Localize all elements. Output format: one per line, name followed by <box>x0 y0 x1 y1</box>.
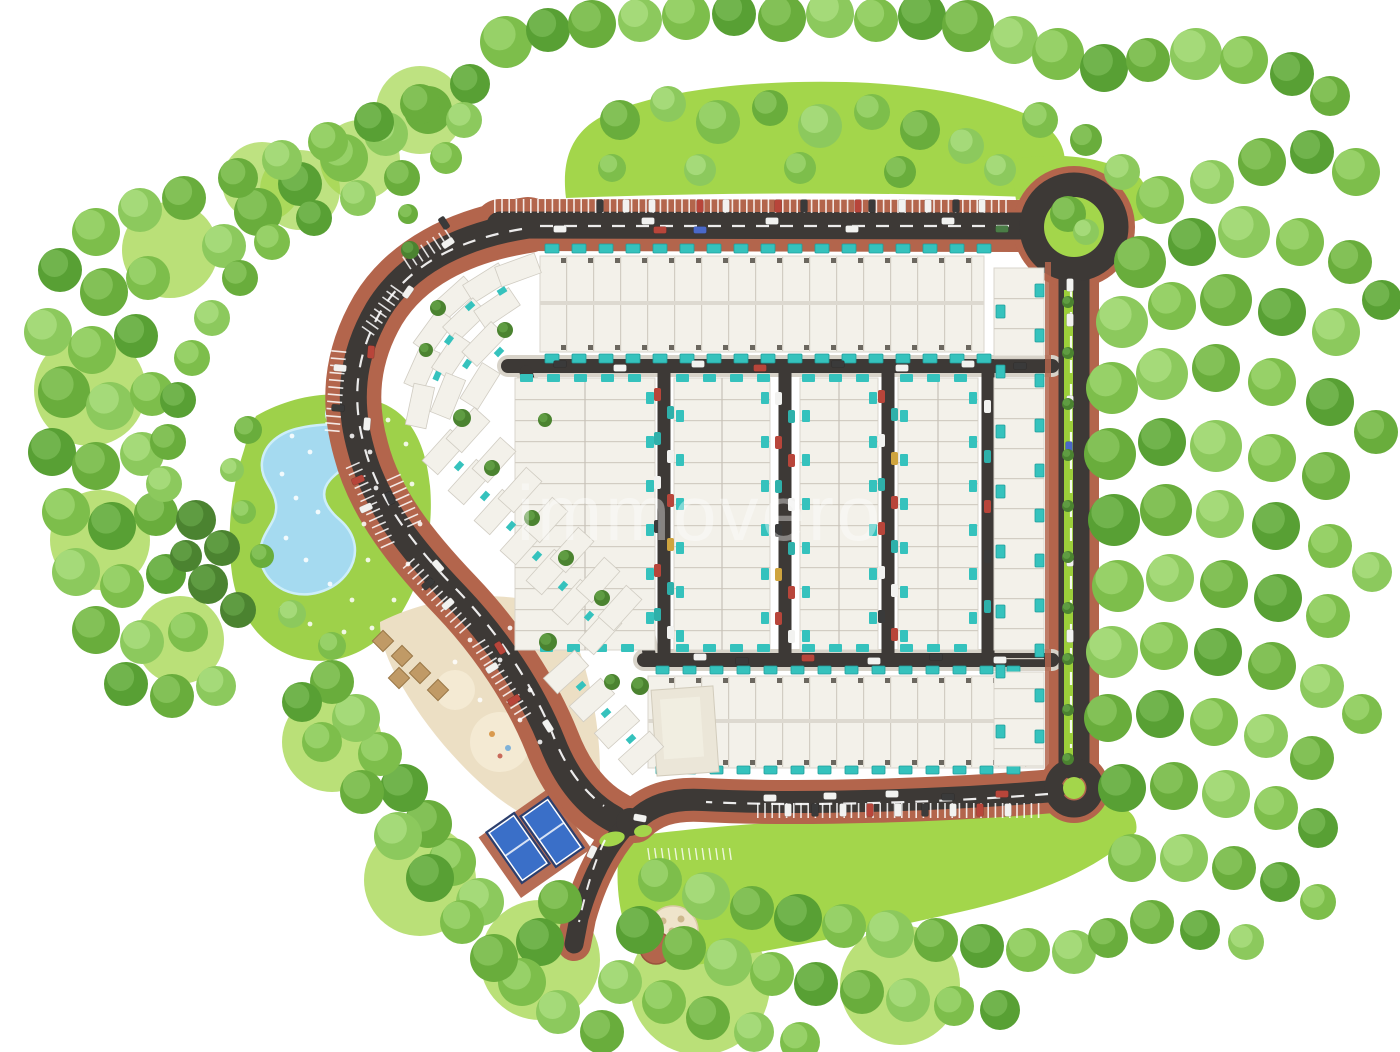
tree <box>400 84 440 124</box>
car <box>775 436 782 449</box>
car <box>996 226 1009 233</box>
tree-highlight <box>265 142 290 167</box>
pool <box>764 666 777 674</box>
pool <box>1035 329 1044 342</box>
car <box>996 791 1009 798</box>
pool <box>628 374 641 382</box>
pool <box>1035 284 1044 297</box>
tick <box>768 199 770 213</box>
tree-highlight <box>1303 666 1330 693</box>
tree-highlight <box>1151 284 1181 314</box>
car <box>649 200 656 213</box>
tree-highlight <box>320 633 337 650</box>
tree-highlight <box>1063 398 1070 405</box>
pool <box>734 354 748 363</box>
tick <box>764 803 766 818</box>
pebble <box>418 522 423 527</box>
tree <box>150 424 186 460</box>
tree <box>1126 38 1170 82</box>
tree <box>948 128 984 164</box>
tree-highlight <box>205 226 232 253</box>
wall <box>777 678 782 683</box>
tree <box>401 241 419 259</box>
tick <box>566 199 568 213</box>
pebble <box>308 450 313 455</box>
tree-highlight <box>1153 764 1183 794</box>
tree <box>1022 102 1058 138</box>
tree-highlight <box>652 87 674 109</box>
tick <box>523 199 525 213</box>
tree <box>28 428 76 476</box>
tree <box>1302 452 1350 500</box>
house-diagonal <box>594 705 639 749</box>
car <box>736 658 749 665</box>
tick <box>800 803 802 818</box>
tree <box>278 600 306 628</box>
car <box>922 804 929 817</box>
tree-highlight <box>539 414 548 423</box>
tree <box>1248 358 1296 406</box>
tree-highlight <box>1117 238 1149 270</box>
pebble <box>518 718 523 723</box>
tree-highlight <box>917 920 944 947</box>
tree <box>1062 398 1074 410</box>
pool <box>818 766 831 774</box>
tree <box>1190 160 1234 204</box>
pool <box>969 612 977 624</box>
tree <box>662 926 706 970</box>
tree-highlight <box>595 591 605 601</box>
pool <box>1035 419 1044 432</box>
car <box>614 365 627 372</box>
car <box>869 200 876 213</box>
tree <box>1202 770 1250 818</box>
pool <box>900 542 908 554</box>
tree-highlight <box>571 2 601 32</box>
tree-highlight <box>1099 298 1131 330</box>
tree <box>1138 418 1186 466</box>
tick <box>811 199 813 213</box>
tree <box>100 564 144 608</box>
pebble <box>374 486 379 491</box>
tree <box>440 900 484 944</box>
tick <box>710 199 712 213</box>
tree-highlight <box>1355 554 1380 579</box>
tree <box>752 90 788 126</box>
pebble <box>508 626 513 631</box>
pool <box>869 392 877 404</box>
block-spine <box>838 378 839 650</box>
pebble <box>468 638 473 643</box>
tree <box>594 590 610 606</box>
tree-highlight <box>311 124 336 149</box>
tree <box>604 674 620 690</box>
tick <box>991 199 993 213</box>
pool <box>761 354 775 363</box>
wall <box>831 760 836 765</box>
tree-highlight <box>343 772 370 799</box>
pebble <box>294 496 299 501</box>
tick <box>940 199 942 213</box>
east-sidewalk <box>1045 262 1051 768</box>
tree-highlight <box>357 104 382 129</box>
tick <box>858 803 860 818</box>
tree <box>398 204 418 224</box>
car <box>801 200 808 213</box>
tree-highlight <box>1193 422 1225 454</box>
pebble <box>308 622 313 627</box>
tree-highlight <box>1035 30 1067 62</box>
pool <box>761 244 775 253</box>
tree <box>1062 500 1074 512</box>
car <box>840 804 847 817</box>
tree <box>1096 296 1148 348</box>
clubhouse-roof <box>660 697 704 760</box>
car <box>984 400 991 413</box>
pool <box>802 454 810 466</box>
tree-highlight <box>1139 350 1171 382</box>
pool <box>980 766 993 774</box>
car <box>1005 804 1012 817</box>
pool <box>601 708 612 718</box>
tree <box>1354 410 1398 454</box>
tick <box>969 199 971 213</box>
tree <box>68 326 116 374</box>
tree <box>222 260 258 296</box>
tree-highlight <box>176 341 198 363</box>
tree-highlight <box>559 551 569 561</box>
tree-highlight <box>1197 630 1227 660</box>
wall <box>750 345 755 350</box>
tree-highlight <box>1223 38 1253 68</box>
tree <box>1194 628 1242 676</box>
play-equipment <box>505 745 511 751</box>
tree <box>1073 219 1099 245</box>
car <box>1014 363 1027 370</box>
tree-highlight <box>313 662 340 689</box>
tree <box>1248 434 1296 482</box>
tree <box>1192 344 1240 392</box>
pool <box>996 365 1005 378</box>
tick <box>544 199 546 213</box>
tree <box>794 962 838 1006</box>
pool <box>899 666 912 674</box>
pool <box>676 410 684 422</box>
tree-highlight <box>1106 155 1128 177</box>
tree-highlight <box>27 310 57 340</box>
car <box>694 654 707 661</box>
car <box>333 364 347 372</box>
car <box>775 568 782 581</box>
block-spine <box>584 378 585 650</box>
wall <box>750 678 755 683</box>
wall <box>885 760 890 765</box>
car <box>654 388 661 401</box>
tree <box>1238 138 1286 186</box>
tick <box>959 803 961 818</box>
pool <box>734 244 748 253</box>
wall <box>966 760 971 765</box>
pool <box>626 734 637 744</box>
tree <box>1196 490 1244 538</box>
tree <box>72 442 120 490</box>
tree-highlight <box>1143 624 1173 654</box>
tick <box>796 199 798 213</box>
tree <box>374 812 422 860</box>
pool <box>761 524 769 536</box>
tree <box>642 980 686 1024</box>
tree-highlight <box>236 417 253 434</box>
pool <box>980 666 993 674</box>
tick <box>739 199 741 213</box>
tree-highlight <box>409 856 439 886</box>
tree-highlight <box>342 181 364 203</box>
car <box>891 496 898 509</box>
tick <box>1023 803 1025 818</box>
tree-highlight <box>206 531 228 553</box>
pool <box>869 568 877 580</box>
tree-highlight <box>498 323 508 333</box>
turnaround-island <box>1063 777 1085 799</box>
tree <box>42 488 90 536</box>
tree-highlight <box>1273 54 1300 81</box>
tree-highlight <box>149 556 174 581</box>
tick <box>782 199 784 213</box>
tree <box>1070 124 1102 156</box>
tree <box>1220 36 1268 84</box>
tick <box>987 803 989 818</box>
wall <box>777 258 782 263</box>
car <box>812 804 819 817</box>
tree <box>234 416 262 444</box>
pool <box>802 644 815 652</box>
tree <box>854 0 898 42</box>
tree-highlight <box>280 601 297 618</box>
tick <box>937 803 939 818</box>
tick <box>930 803 932 818</box>
pool <box>680 244 694 253</box>
tree-highlight <box>256 225 278 247</box>
tree-highlight <box>1311 526 1338 553</box>
tree <box>866 910 914 958</box>
tick <box>717 199 719 213</box>
tree <box>126 256 170 300</box>
tree-highlight <box>1365 282 1390 307</box>
wall <box>831 345 836 350</box>
wall <box>561 345 566 350</box>
tick <box>912 199 914 213</box>
pool <box>900 586 908 598</box>
tick <box>998 199 1000 213</box>
tick <box>732 199 734 213</box>
tree-highlight <box>1193 162 1220 189</box>
wall <box>912 678 917 683</box>
tree <box>302 722 342 762</box>
tree-highlight <box>665 928 692 955</box>
tick <box>973 803 975 818</box>
wall <box>696 345 701 350</box>
tree <box>1290 130 1334 174</box>
car <box>667 406 674 419</box>
tree <box>1308 524 1352 568</box>
wall <box>912 258 917 263</box>
car <box>775 480 782 493</box>
pool-row <box>545 244 991 253</box>
car <box>775 392 782 405</box>
divider <box>994 538 1044 539</box>
tree-highlight <box>1091 496 1123 528</box>
tree <box>682 872 730 920</box>
tick <box>944 803 946 818</box>
tick <box>757 803 759 818</box>
pool <box>599 244 613 253</box>
divider <box>994 388 1044 389</box>
pool <box>926 766 939 774</box>
tree <box>1148 282 1196 330</box>
tree <box>526 8 570 52</box>
tree-highlight <box>1335 150 1365 180</box>
tree-highlight <box>386 161 408 183</box>
tree-highlight <box>1063 753 1070 760</box>
tree <box>616 906 664 954</box>
tick <box>908 803 910 818</box>
tree-highlight <box>945 2 977 34</box>
tree-highlight <box>41 250 68 277</box>
tick <box>879 803 881 818</box>
tree-highlight <box>1139 692 1169 722</box>
pool <box>899 766 912 774</box>
tree-highlight <box>443 902 470 929</box>
tree <box>1306 378 1354 426</box>
wall <box>561 258 566 263</box>
wall <box>777 345 782 350</box>
tick <box>887 803 889 818</box>
tick <box>616 199 618 213</box>
tree <box>822 904 866 948</box>
tree-highlight <box>91 504 121 534</box>
wall <box>858 760 863 765</box>
wall <box>966 678 971 683</box>
tree <box>684 154 716 186</box>
tree <box>934 986 974 1026</box>
tree <box>1244 714 1288 758</box>
pool <box>900 644 913 652</box>
tree-highlight <box>797 964 824 991</box>
wall <box>588 258 593 263</box>
wall <box>669 678 674 683</box>
wall <box>804 678 809 683</box>
pool <box>683 666 696 674</box>
tick <box>1002 803 1004 818</box>
wall <box>669 345 674 350</box>
pool <box>1035 464 1044 477</box>
car <box>788 498 795 511</box>
site-plan-svg <box>0 0 1400 1052</box>
tick <box>771 803 773 818</box>
tree <box>686 996 730 1040</box>
divider <box>994 748 1044 749</box>
tree <box>1136 176 1184 224</box>
tree-highlight <box>75 210 105 240</box>
car <box>950 804 957 817</box>
tick <box>494 199 496 213</box>
tree <box>600 100 640 140</box>
car <box>802 655 815 662</box>
tick <box>915 803 917 818</box>
pool <box>950 244 964 253</box>
tree <box>1180 910 1220 950</box>
car <box>642 218 655 225</box>
pebble <box>342 630 347 635</box>
car <box>896 365 909 372</box>
pool <box>1035 554 1044 567</box>
car <box>942 794 955 801</box>
tree <box>354 102 394 142</box>
tree-highlight <box>889 980 916 1007</box>
block-spine <box>937 378 938 650</box>
tree <box>1342 694 1382 734</box>
wall <box>831 258 836 263</box>
tree-highlight <box>1293 738 1320 765</box>
tree-highlight <box>1052 197 1074 219</box>
tree-highlight <box>1063 653 1070 660</box>
pebble <box>410 482 415 487</box>
tree <box>840 970 884 1014</box>
car <box>754 365 767 372</box>
tree <box>1062 347 1074 359</box>
pool <box>996 725 1005 738</box>
tree-highlight <box>222 459 237 474</box>
pool <box>1035 730 1044 743</box>
pool <box>707 244 721 253</box>
wall <box>858 258 863 263</box>
tree-highlight <box>1083 46 1113 76</box>
wall <box>723 760 728 765</box>
pool <box>969 392 977 404</box>
tree-highlight <box>1221 208 1253 240</box>
pebble <box>368 450 373 455</box>
divider <box>994 298 1044 299</box>
tick <box>501 199 503 213</box>
tree-highlight <box>1171 220 1201 250</box>
car <box>785 804 792 817</box>
tree <box>734 1012 774 1052</box>
car <box>667 582 674 595</box>
car <box>654 227 667 234</box>
tree-highlight <box>641 860 668 887</box>
tree <box>538 880 582 924</box>
pool <box>761 392 769 404</box>
tree <box>446 102 482 138</box>
pool <box>969 436 977 448</box>
pool-row <box>900 644 967 652</box>
pool <box>923 354 937 363</box>
tree <box>1088 918 1128 958</box>
pool <box>845 666 858 674</box>
pool <box>869 244 883 253</box>
tree <box>1254 786 1298 830</box>
car <box>979 200 986 213</box>
wall <box>723 258 728 263</box>
pool <box>815 244 829 253</box>
tree-highlight <box>1251 436 1281 466</box>
car <box>694 227 707 234</box>
tree <box>898 0 946 40</box>
tick <box>779 803 781 818</box>
car <box>654 520 661 533</box>
tree-highlight <box>454 410 465 421</box>
tree-highlight <box>519 920 549 950</box>
